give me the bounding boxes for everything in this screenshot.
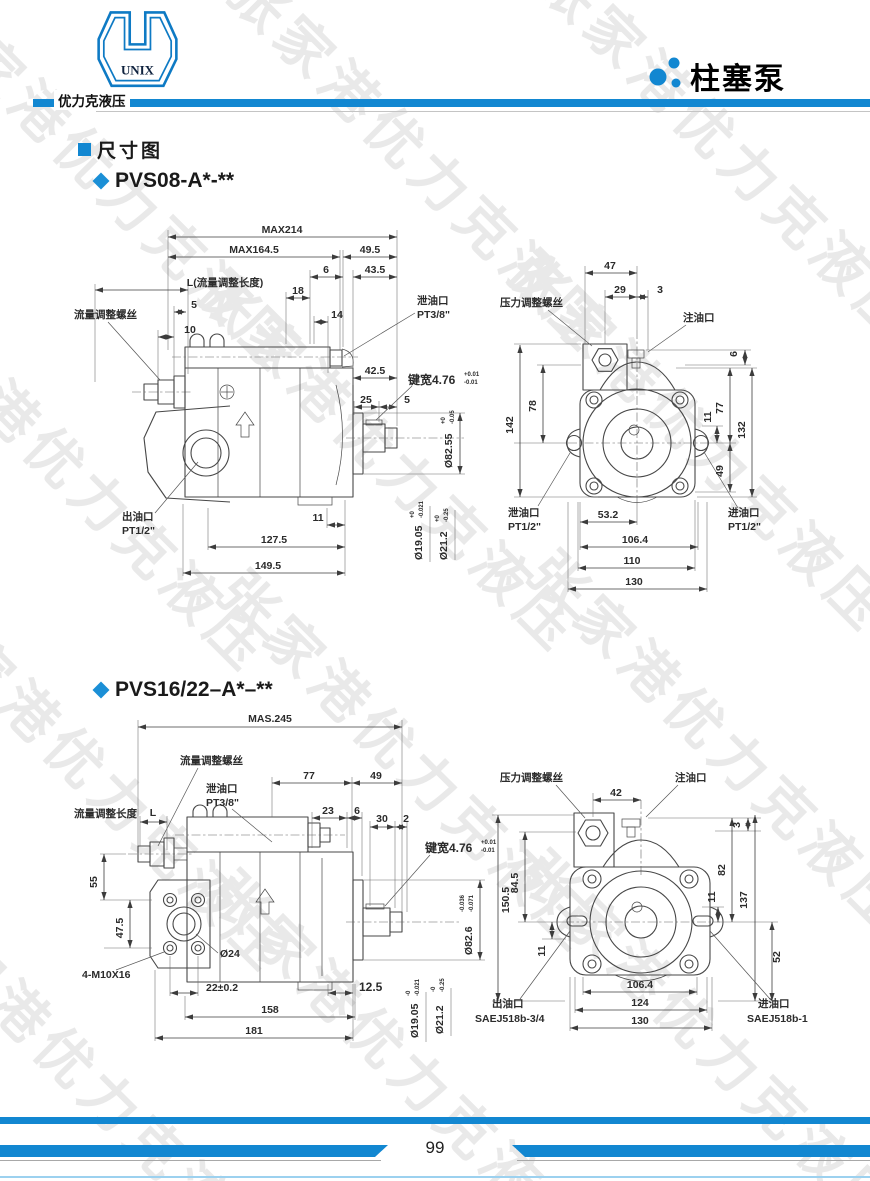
- dim-11: 11: [702, 411, 714, 422]
- label-adjust-length: 流量调整长度: [74, 807, 137, 820]
- model-title-pvs16: PVS16/22–A*–**: [115, 678, 273, 702]
- dim-42-5: 42.5: [365, 365, 386, 377]
- dim-14: 14: [331, 309, 343, 321]
- label-inlet-port: 进油口: [758, 997, 790, 1010]
- company-name: 优力克液压: [54, 90, 130, 110]
- dim-150-5: 150.5: [500, 887, 512, 913]
- label-fill-port: 注油口: [683, 311, 715, 324]
- dim-6: 6: [323, 264, 329, 276]
- dim-11: 11: [312, 512, 323, 524]
- dim-78: 78: [527, 400, 539, 412]
- footer-bottom-line: [0, 1176, 870, 1178]
- dim-49: 49: [714, 465, 726, 477]
- label-fill-port: 注油口: [675, 771, 707, 784]
- model-title-pvs08: PVS08-A*-**: [115, 169, 234, 193]
- dim-12-5: 12.5: [359, 980, 383, 994]
- dim-3: 3: [657, 284, 663, 296]
- label-inlet-port: 进油口: [728, 506, 760, 519]
- label-pressure-screw: 压力调整螺丝: [500, 296, 563, 309]
- spigot-tol-upper: -0.036: [460, 894, 466, 912]
- model-heading-pvs08: PVS08-A*-**: [95, 169, 234, 193]
- catalog-page: 张家港优力克液压 张家港优力克液压 张家港优力克液压 张家港优力克液压 张家港优…: [0, 0, 870, 1181]
- dim-47: 47: [604, 260, 616, 272]
- dim-77: 77: [714, 402, 726, 414]
- pvs08-side-drawing: MAX214 MAX164.5 49.5 6 43.5 L(流量调整长度) 18…: [60, 210, 480, 610]
- label-flow-screw: 流量调整螺丝: [180, 754, 243, 767]
- dim-L: L: [150, 807, 157, 819]
- page-topic: 柱塞泵: [690, 54, 786, 98]
- dim-130: 130: [625, 576, 643, 588]
- pvs16-side-drawing: MAS.245 流量调整螺丝 77 49 泄油口 PT3/8" 23 6 流量调…: [60, 700, 490, 1060]
- dim-6: 6: [728, 351, 740, 357]
- dim-shaft2: Ø21.2: [434, 1005, 446, 1034]
- dim-22: 22±0.2: [206, 982, 238, 994]
- footer-right-bar: [512, 1145, 870, 1157]
- dim-rear: 49.5: [360, 244, 381, 256]
- label-drain-port: 泄油口: [206, 782, 238, 795]
- diamond-bullet-icon: [93, 682, 110, 699]
- dim-137: 137: [738, 891, 750, 909]
- pvs16-side-dimensions: MAS.245 流量调整螺丝 77 49 泄油口 PT3/8" 23 6 流量调…: [74, 713, 497, 1042]
- dim-3: 3: [731, 822, 743, 828]
- dim-130: 130: [631, 1015, 649, 1027]
- dim-52: 52: [771, 951, 783, 963]
- dim-shaft1: Ø19.05: [409, 1003, 421, 1038]
- label-adjust-length: L(流量调整长度): [187, 276, 263, 289]
- shaft2-tol-lower: -0.25: [444, 508, 450, 522]
- dim-132: 132: [736, 421, 748, 439]
- dim-max-total: MAS.245: [248, 713, 292, 725]
- dim-29: 29: [614, 284, 626, 296]
- dim-10: 10: [184, 324, 196, 336]
- header-rule: [96, 111, 870, 112]
- label-drain-port: 泄油口: [417, 294, 449, 307]
- label-drain-port: 泄油口: [508, 506, 540, 519]
- diamond-bullet-icon: [93, 173, 110, 190]
- keyway-tol-upper: +0.01: [464, 372, 480, 378]
- dim-47-5: 47.5: [114, 918, 126, 939]
- section-title: 尺寸图: [97, 136, 163, 163]
- label-keyway: 键宽4.76: [407, 372, 456, 387]
- pvs16-side-geometry: [128, 805, 460, 990]
- shaft1-tol-lower: -0.021: [415, 978, 421, 996]
- model-heading-pvs16: PVS16/22–A*–**: [95, 678, 273, 702]
- dim-49: 49: [370, 770, 382, 782]
- label-outlet-spec: SAEJ518b-3/4: [475, 1013, 545, 1025]
- label-outlet-port: 出油口: [122, 510, 154, 523]
- logo-wordmark: UNIX: [121, 63, 155, 78]
- label-bolts: 4-M10X16: [82, 969, 131, 981]
- footer-left-rule: [0, 1160, 381, 1161]
- dim-18: 18: [292, 285, 304, 297]
- dim-6: 6: [354, 805, 360, 817]
- dim-82: 82: [716, 864, 728, 876]
- page-number: 99: [396, 1138, 474, 1158]
- footer-right-rule: [517, 1160, 870, 1161]
- dim-110: 110: [624, 555, 641, 567]
- dim-106-4: 106.4: [622, 534, 648, 546]
- label-drain-spec: PT1/2": [508, 521, 541, 533]
- shaft2-tol-upper: -0: [431, 986, 437, 992]
- dim-23: 23: [322, 805, 334, 817]
- dim-11-right: 11: [706, 891, 718, 902]
- shaft1-tol-lower: -0.021: [419, 500, 425, 518]
- footer-left-bar: [0, 1145, 388, 1157]
- footer-top-bar: [0, 1117, 870, 1124]
- dim-124: 124: [631, 997, 649, 1009]
- dim-158: 158: [261, 1004, 279, 1016]
- pvs08-front-geometry: [567, 330, 709, 503]
- dim-shaft1: Ø19.05: [413, 525, 425, 560]
- unix-logo: UNIX: [90, 8, 185, 98]
- dim-181: 181: [245, 1025, 263, 1037]
- dim-25: 25: [360, 394, 372, 406]
- dim-max-total: MAX214: [262, 224, 303, 236]
- dim-55: 55: [88, 876, 100, 888]
- pvs16-front-geometry: [557, 800, 723, 981]
- label-drain-spec: PT3/8": [417, 309, 450, 321]
- shaft2-tol-upper: +0: [435, 514, 441, 522]
- pvs08-front-drawing: 47 29 3 压力调整螺丝 注油口 6 142 78 77 11 132 49…: [480, 240, 870, 600]
- dim-2: 2: [403, 813, 409, 825]
- spigot-tol-lower: -0.05: [450, 410, 456, 424]
- dim-max-body: MAX164.5: [229, 244, 279, 256]
- label-outlet-spec: PT1/2": [122, 525, 155, 537]
- spigot-tol-upper: +0: [441, 416, 447, 424]
- dim-5: 5: [191, 299, 197, 311]
- dim-5b: 5: [404, 394, 410, 406]
- dim-142: 142: [504, 416, 516, 434]
- pvs08-side-dimensions: MAX214 MAX164.5 49.5 6 43.5 L(流量调整长度) 18…: [74, 224, 480, 576]
- topic-dots-icon: [648, 56, 686, 92]
- label-drain-spec: PT3/8": [206, 797, 239, 809]
- pvs16-front-drawing: 压力调整螺丝 42 注油口 3 84.5 150.5 82 137 11 52 …: [470, 755, 870, 1085]
- label-inlet-spec: PT1/2": [728, 521, 761, 533]
- dim-77: 77: [303, 770, 315, 782]
- header-bar: [33, 99, 870, 107]
- pvs16-front-dimensions: 压力调整螺丝 42 注油口 3 84.5 150.5 82 137 11 52 …: [475, 771, 808, 1031]
- label-inlet-spec: SAEJ518b-1: [747, 1013, 808, 1025]
- shaft1-tol-upper: +0: [410, 510, 416, 518]
- label-outlet-port: 出油口: [492, 997, 524, 1010]
- dim-spigot: Ø82.55: [443, 433, 455, 468]
- dim-43-5: 43.5: [365, 264, 386, 276]
- dim-shaft2: Ø21.2: [438, 531, 450, 560]
- dim-30: 30: [376, 813, 388, 825]
- label-keyway: 键宽4.76: [424, 840, 473, 855]
- dim-53-2: 53.2: [598, 509, 619, 521]
- dim-149-5: 149.5: [255, 560, 281, 572]
- shaft2-tol-lower: -0.25: [440, 978, 446, 992]
- dim-11-left: 11: [536, 945, 548, 956]
- section-heading: 尺寸图: [78, 136, 163, 163]
- dim-dia24: Ø24: [220, 948, 240, 960]
- label-pressure-screw: 压力调整螺丝: [500, 771, 563, 784]
- dim-42: 42: [610, 787, 622, 799]
- label-flow-screw: 流量调整螺丝: [74, 308, 137, 321]
- shaft1-tol-upper: -0: [406, 990, 412, 996]
- pvs08-side-geometry: [132, 334, 464, 505]
- dim-127-5: 127.5: [261, 534, 287, 546]
- square-bullet-icon: [78, 143, 91, 156]
- keyway-tol-lower: -0.01: [464, 380, 478, 386]
- dim-106-4: 106.4: [627, 979, 653, 991]
